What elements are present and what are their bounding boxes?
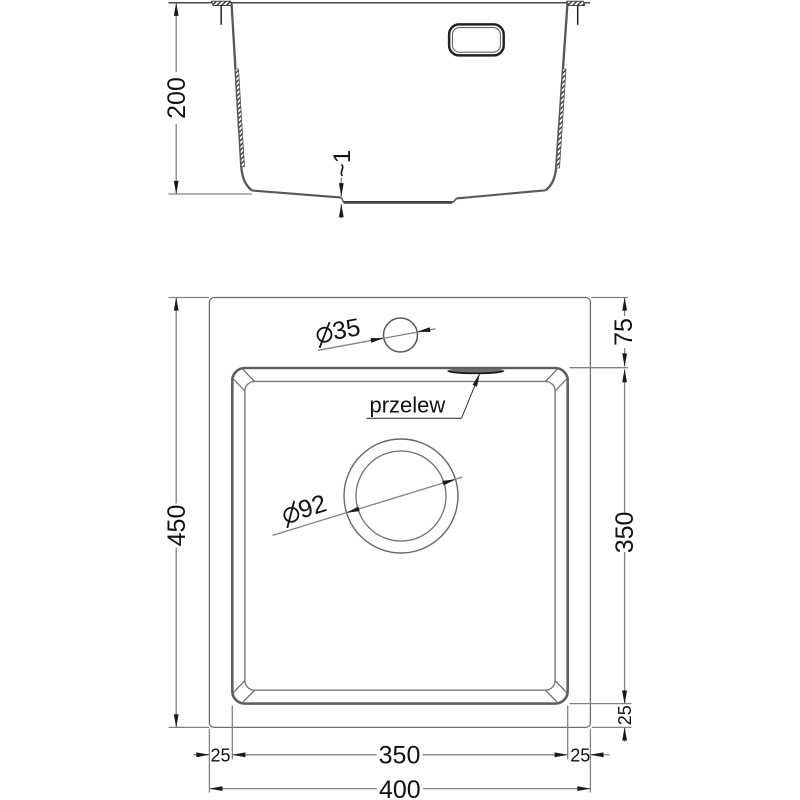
svg-text:przelew: przelew — [370, 393, 446, 418]
svg-text:350: 350 — [379, 742, 421, 770]
svg-text:400: 400 — [379, 776, 421, 800]
svg-text:35: 35 — [330, 313, 362, 346]
svg-text:25: 25 — [210, 745, 230, 765]
svg-text:75: 75 — [610, 318, 638, 346]
svg-text:450: 450 — [163, 505, 191, 547]
svg-text:25: 25 — [570, 745, 590, 765]
svg-text:200: 200 — [163, 77, 191, 119]
svg-text:350: 350 — [611, 512, 639, 554]
svg-text:25: 25 — [615, 705, 635, 725]
svg-text:~1: ~1 — [329, 150, 356, 177]
